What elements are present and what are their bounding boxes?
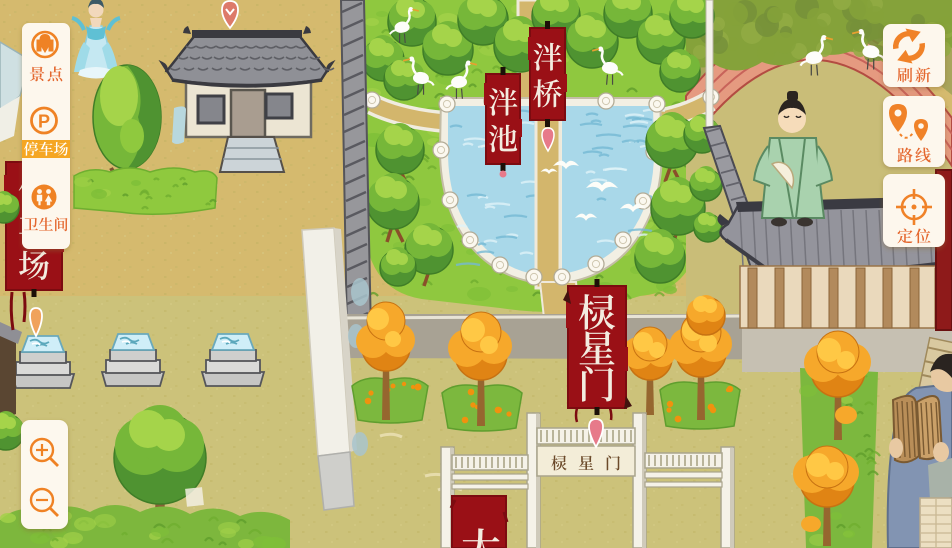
svg-text:P: P [38,112,50,132]
